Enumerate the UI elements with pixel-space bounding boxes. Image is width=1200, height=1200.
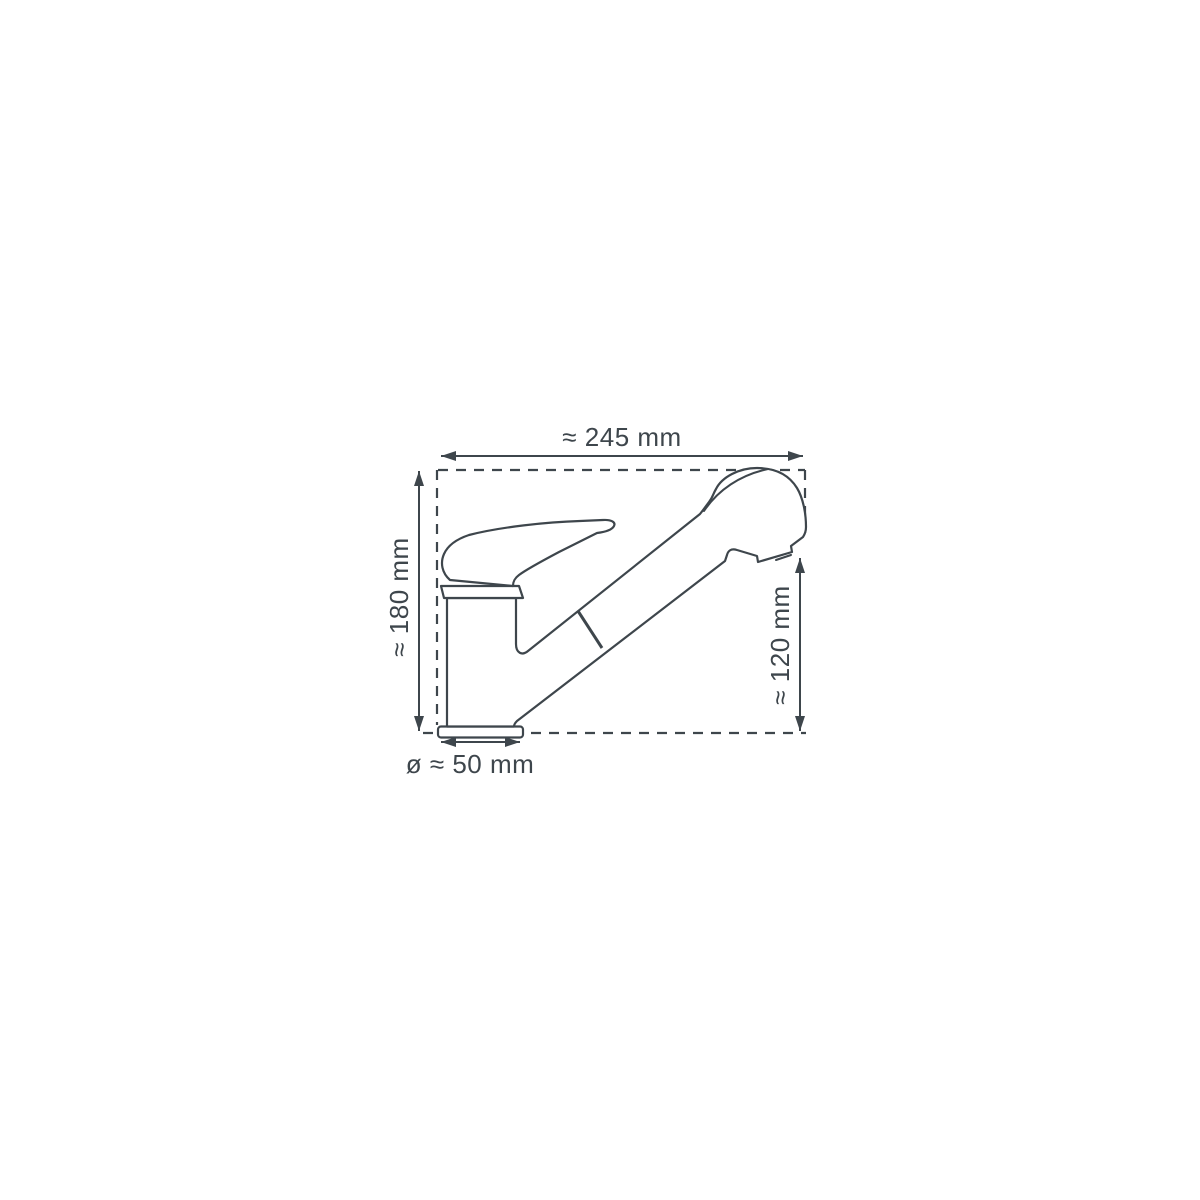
faucet-drawing — [438, 468, 806, 738]
spout-height-dimension-label: ≈ 120 mm — [765, 585, 795, 704]
faucet-collar — [441, 586, 523, 598]
faucet-lever-handle — [442, 520, 614, 586]
base-diameter-dimension-label: ø ≈ 50 mm — [406, 749, 535, 779]
faucet-dimension-diagram: ≈ 245 mm ≈ 180 mm ≈ 120 mm ø ≈ 50 mm — [0, 0, 1200, 1200]
faucet-base-flange — [438, 727, 523, 738]
width-dimension-label: ≈ 245 mm — [562, 422, 681, 452]
height-dimension-label: ≈ 180 mm — [384, 537, 414, 656]
diagram-canvas: ≈ 245 mm ≈ 180 mm ≈ 120 mm ø ≈ 50 mm — [0, 0, 1200, 1200]
